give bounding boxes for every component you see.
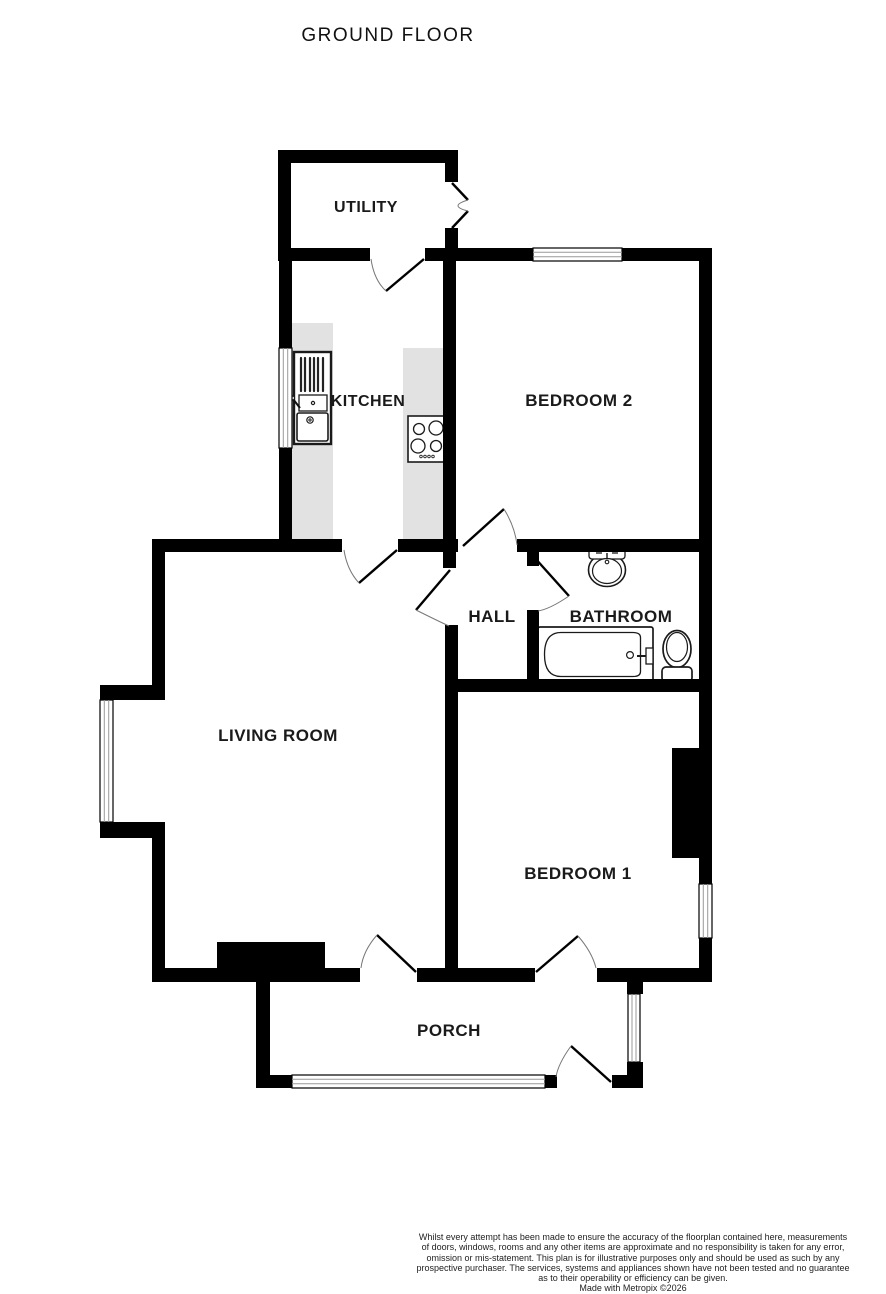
wall — [152, 539, 165, 685]
room-label-hall: HALL — [468, 607, 515, 626]
wall — [256, 1075, 292, 1088]
wall — [152, 838, 165, 982]
door-utility-exterior — [452, 183, 468, 228]
door-bedroom1 — [536, 936, 596, 972]
disclaimer-line: Whilst every attempt has been made to en… — [388, 1232, 878, 1242]
wall — [279, 260, 292, 348]
wall — [417, 968, 535, 982]
wall — [256, 982, 270, 1088]
disclaimer-line: omission or mis-statement. This plan is … — [388, 1253, 878, 1263]
disclaimer-line: as to their operability or efficiency ca… — [388, 1273, 878, 1283]
door-living-porch — [361, 935, 416, 972]
door-bedroom2 — [463, 509, 517, 546]
wall — [597, 968, 712, 982]
floorplan-svg: UTILITY KITCHEN BEDROOM 2 HALL BATHROOM … — [0, 0, 886, 1291]
door-living-hall — [416, 570, 450, 626]
wall — [699, 248, 712, 692]
door-porch-entrance — [556, 1046, 611, 1082]
wall — [445, 150, 458, 182]
window-porch-front — [292, 1075, 545, 1088]
wall — [152, 968, 360, 982]
window-bedroom1 — [699, 884, 712, 938]
credit-line: Made with Metropix ©2026 — [388, 1283, 878, 1293]
wall — [152, 539, 342, 552]
door-utility-kitchen — [371, 259, 424, 291]
room-label-utility: UTILITY — [334, 199, 398, 216]
room-label-bedroom1: BEDROOM 1 — [524, 864, 631, 883]
room-label-bedroom2: BEDROOM 2 — [525, 391, 632, 410]
kitchen-sink-icon — [291, 352, 332, 444]
room-label-living-room: LIVING ROOM — [218, 726, 338, 745]
disclaimer-line: of doors, windows, rooms and any other i… — [388, 1242, 878, 1252]
hob-icon — [408, 416, 447, 462]
wall — [443, 258, 456, 568]
door-bathroom — [534, 557, 569, 611]
room-label-kitchen: KITCHEN — [331, 393, 406, 410]
wall — [100, 822, 165, 838]
wall — [398, 539, 458, 552]
chimney-breast — [217, 942, 325, 970]
wall — [100, 685, 165, 700]
wall — [627, 982, 643, 994]
wall — [445, 679, 712, 692]
wall — [445, 625, 458, 982]
room-label-bathroom: BATHROOM — [570, 607, 673, 626]
wall — [425, 248, 533, 261]
window-living-bay — [100, 700, 113, 822]
wardrobe-block — [672, 748, 699, 858]
window-bedroom2 — [533, 248, 622, 261]
wall — [545, 1075, 557, 1088]
disclaimer: Whilst every attempt has been made to en… — [388, 1232, 878, 1294]
disclaimer-line: prospective purchaser. The services, sys… — [388, 1263, 878, 1273]
wall — [699, 692, 712, 884]
washbasin-icon — [589, 549, 626, 587]
room-label-porch: PORCH — [417, 1021, 481, 1040]
wall — [622, 248, 712, 261]
window-porch-side — [628, 994, 640, 1062]
wall — [278, 248, 370, 261]
window-kitchen — [279, 348, 292, 448]
wall — [517, 539, 712, 552]
wall — [279, 448, 292, 552]
bathtub-icon — [538, 627, 653, 682]
wall — [627, 1062, 643, 1088]
wall — [527, 610, 539, 682]
wall — [278, 150, 291, 260]
door-kitchen-living — [344, 550, 397, 583]
wall — [278, 150, 458, 163]
toilet-icon — [662, 631, 692, 683]
